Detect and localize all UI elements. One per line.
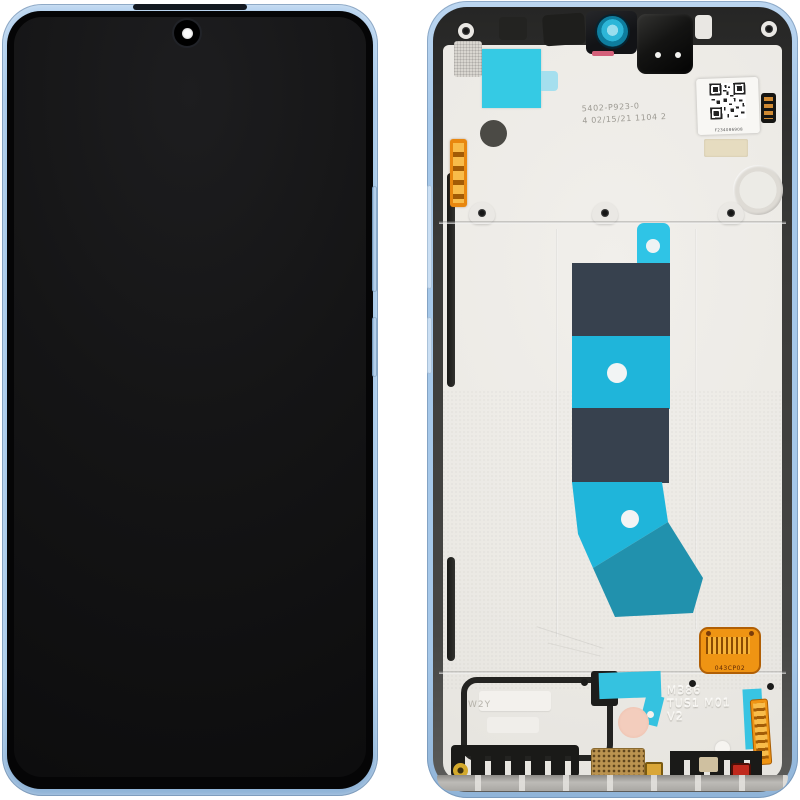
antenna-pad bbox=[699, 757, 718, 772]
gasket-marking: W2Y bbox=[468, 700, 491, 710]
connector-dot bbox=[706, 631, 711, 636]
earpiece-slot bbox=[133, 4, 247, 10]
screw bbox=[767, 683, 774, 690]
loudspeaker-comb bbox=[451, 745, 579, 777]
flex-connector-code: 043CP02 bbox=[701, 665, 759, 672]
frame-marking-line: V2 bbox=[667, 709, 731, 723]
volume-button bbox=[372, 186, 377, 292]
bottom-flex-connector: 043CP02 bbox=[699, 627, 761, 674]
connector-dot bbox=[749, 631, 754, 636]
foam-adhesive-dot bbox=[618, 707, 649, 738]
frame-marking-line: TUS1 M01 bbox=[667, 696, 731, 710]
display-panel bbox=[14, 17, 366, 777]
gasket-emboss bbox=[487, 717, 539, 733]
product-photo-scene: F234086908 5402-P923-0 4 02/15/21 1104 2 bbox=[0, 0, 800, 800]
frame-marking: M386 TUS1 M01 V2 bbox=[667, 683, 731, 723]
screw bbox=[581, 679, 588, 686]
camera-lens-dot bbox=[182, 28, 193, 39]
phone-back-view: F234086908 5402-P923-0 4 02/15/21 1104 2 bbox=[427, 1, 798, 798]
phone-front-view bbox=[2, 4, 378, 796]
connector-contacts bbox=[706, 637, 750, 654]
screw bbox=[689, 680, 696, 687]
bottom-wall bbox=[437, 775, 788, 791]
power-button bbox=[372, 317, 377, 377]
punch-hole-camera bbox=[174, 20, 200, 46]
frame-marking-line: M386 bbox=[667, 683, 731, 697]
